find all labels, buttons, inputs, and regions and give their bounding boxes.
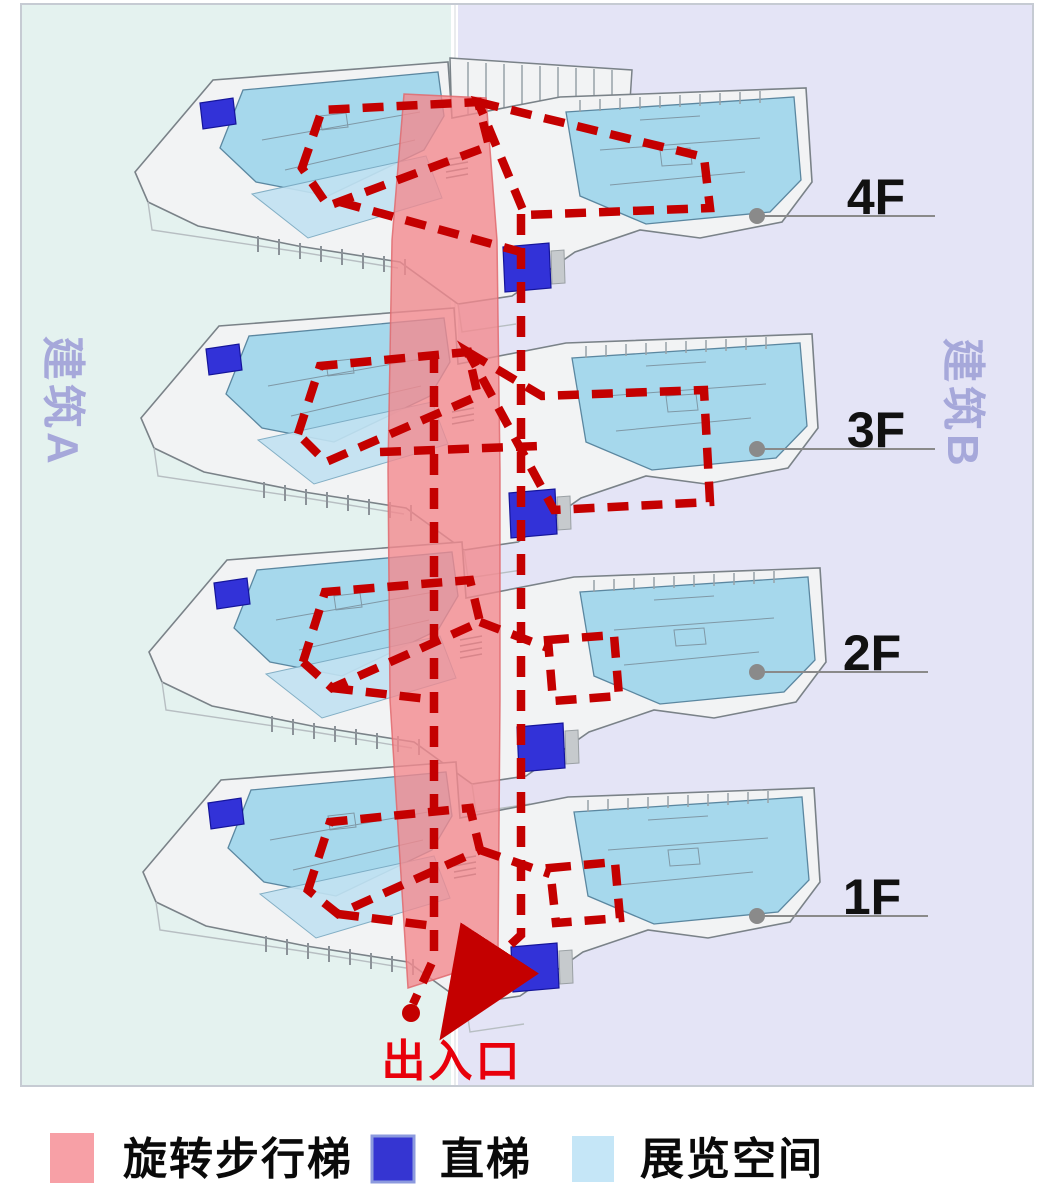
leader-dot-4f — [749, 208, 765, 224]
route-exit-dot — [402, 1004, 420, 1022]
leader-dot-1f — [749, 908, 765, 924]
legend: 旋转步行梯 直梯 展览空间 — [50, 1133, 824, 1184]
floor-label-1f: 1F — [843, 869, 901, 925]
entrance-label: 出入口 — [382, 1037, 523, 1086]
legend-swatch-spiral-stair — [50, 1133, 94, 1183]
circulation-diagram-page: 4F 3F 2F 1F 建筑A 建筑B 出入口 旋转步行梯 直梯 展览空间 — [0, 0, 1044, 1199]
legend-label-elevator: 直梯 — [440, 1135, 532, 1184]
leader-dot-2f — [749, 664, 765, 680]
legend-swatch-elevator — [372, 1136, 414, 1182]
legend-label-exhibition: 展览空间 — [640, 1135, 824, 1184]
building-b-label: 建筑B — [938, 338, 987, 470]
legend-label-spiral-stair: 旋转步行梯 — [123, 1135, 353, 1184]
legend-swatch-exhibition — [572, 1136, 614, 1182]
leader-dot-3f — [749, 441, 765, 457]
floor-label-4f: 4F — [847, 169, 905, 225]
building-a-label: 建筑A — [38, 336, 87, 468]
floor-label-2f: 2F — [843, 625, 901, 681]
floor-label-3f: 3F — [847, 402, 905, 458]
building-circulation-diagram: 4F 3F 2F 1F 建筑A 建筑B 出入口 旋转步行梯 直梯 展览空间 — [0, 0, 1044, 1199]
